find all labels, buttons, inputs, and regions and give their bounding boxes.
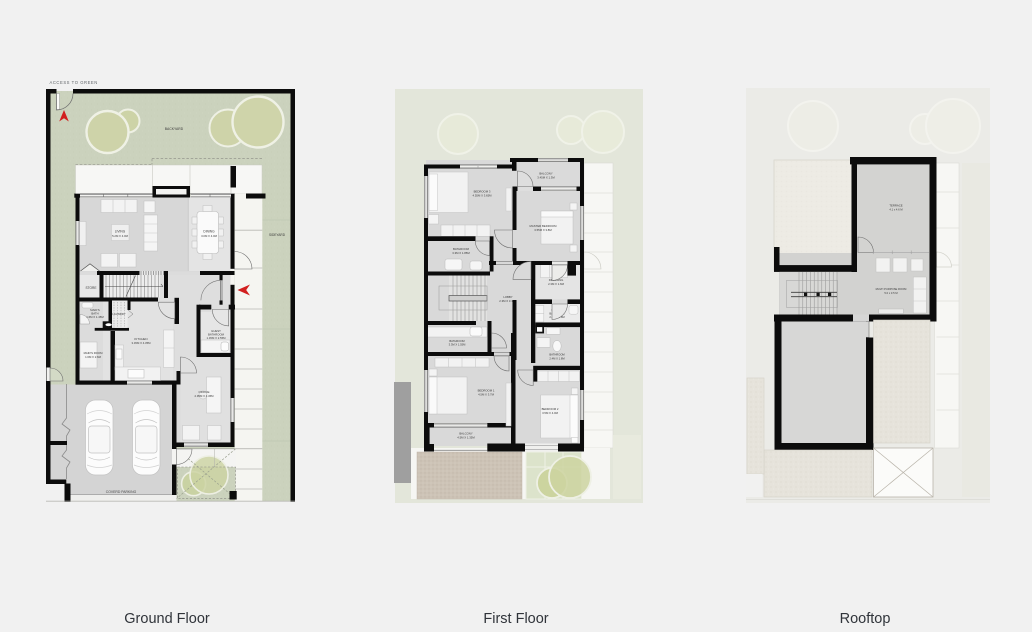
svg-text:LAUNDRY: LAUNDRY <box>112 312 125 316</box>
svg-text:2.3M X 1.6M: 2.3M X 1.6M <box>548 282 565 286</box>
svg-text:4.5M X 1.35M: 4.5M X 1.35M <box>457 435 475 439</box>
svg-text:5.2M X 4.0M: 5.2M X 4.0M <box>112 234 129 238</box>
svg-text:ACCESS TO GREEN: ACCESS TO GREEN <box>50 80 98 85</box>
svg-text:1.45M X 2.55M: 1.45M X 2.55M <box>207 336 227 340</box>
svg-text:2.95M X 4.45M: 2.95M X 4.45M <box>195 394 215 398</box>
svg-text:Rooftop: Rooftop <box>840 611 891 627</box>
svg-text:4.1 x 4.6 M: 4.1 x 4.6 M <box>889 207 903 211</box>
svg-text:2.4M X 1.8M: 2.4M X 1.8M <box>549 356 565 360</box>
svg-text:3.45M X 1.3M: 3.45M X 1.3M <box>537 175 555 179</box>
svg-text:1.6M X 1.45M: 1.6M X 1.45M <box>86 315 104 319</box>
svg-text:1.6M X 2.6M: 1.6M X 2.6M <box>85 355 102 359</box>
svg-text:SIDEYARD: SIDEYARD <box>269 233 286 237</box>
svg-text:BATHROOM: BATHROOM <box>549 352 565 356</box>
svg-text:Ground Floor: Ground Floor <box>124 611 210 627</box>
svg-text:TERRACE: TERRACE <box>889 204 902 208</box>
svg-text:BATHROOM: BATHROOM <box>449 339 465 343</box>
svg-text:First Floor: First Floor <box>483 611 548 627</box>
svg-text:3.55M X 3.8M: 3.55M X 3.8M <box>534 228 552 232</box>
svg-text:3.45M X 4.35M: 3.45M X 4.35M <box>132 341 152 345</box>
svg-text:MULTI PURPOSE ROOM: MULTI PURPOSE ROOM <box>876 287 908 291</box>
svg-text:3.0M X 4.0M: 3.0M X 4.0M <box>201 234 218 238</box>
svg-text:4.5M X 3.7M: 4.5M X 3.7M <box>478 392 495 396</box>
svg-text:BACKYARD: BACKYARD <box>165 127 184 131</box>
svg-text:3.3M X 1.85M: 3.3M X 1.85M <box>452 251 470 255</box>
svg-text:3.5M X 4.0M: 3.5M X 4.0M <box>542 411 559 415</box>
svg-text:COVERD PARKING: COVERD PARKING <box>106 490 137 494</box>
svg-text:5.0 x 3.5 M: 5.0 x 3.5 M <box>884 291 898 295</box>
svg-text:STORE: STORE <box>86 286 97 290</box>
svg-text:4.55M X 3.65M: 4.55M X 3.65M <box>473 193 493 197</box>
svg-text:3.3M X 1.55M: 3.3M X 1.55M <box>449 343 466 347</box>
